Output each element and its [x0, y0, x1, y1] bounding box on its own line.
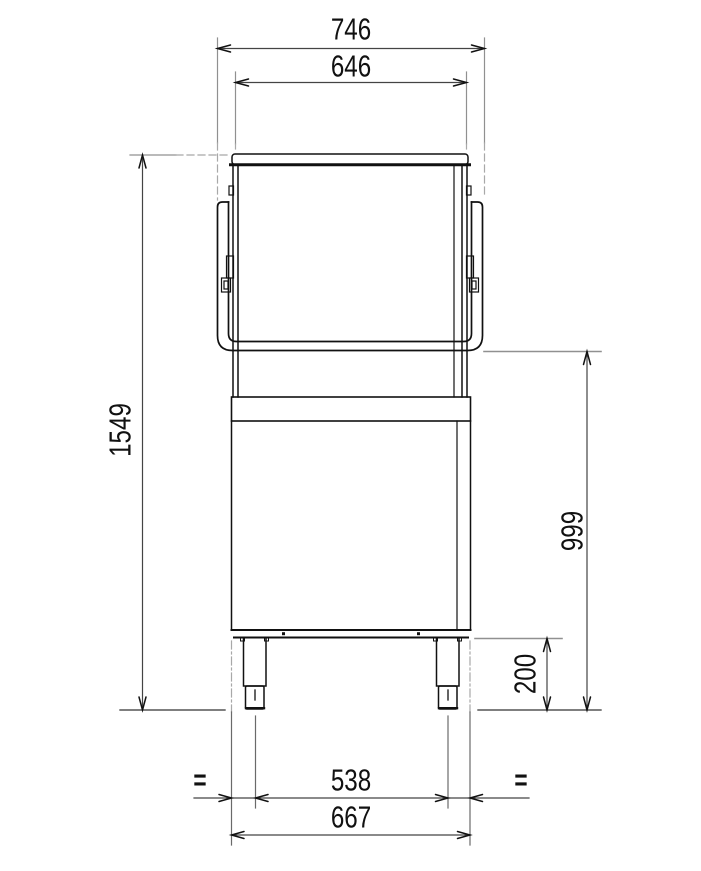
- extension-lines: [120, 38, 601, 845]
- dim-label-top-outer-width: 746: [331, 14, 371, 45]
- handle-latches: [222, 256, 479, 292]
- legs: [241, 638, 462, 710]
- dimension-lines: [143, 49, 588, 836]
- counter-band: [232, 397, 471, 421]
- dimension-drawing-page: 746 646 1549 999 200 = 538 = 667: [0, 0, 701, 871]
- hood-handle: [218, 202, 483, 351]
- hood-top-cap: [231, 154, 470, 165]
- dim-label-base-width: 667: [331, 802, 371, 833]
- dim-label-equal-left: =: [193, 767, 206, 796]
- dim-label-leg-spacing: 538: [331, 765, 371, 796]
- dim-label-equal-right: =: [514, 767, 527, 796]
- dishwasher-outline: [218, 154, 483, 709]
- base-strip: [234, 632, 468, 637]
- dim-label-top-inner-width: 646: [331, 51, 371, 82]
- lower-cabinet: [232, 421, 471, 630]
- dim-label-overall-height: 1549: [105, 403, 136, 457]
- dim-label-leg-height: 200: [510, 654, 541, 694]
- dim-label-working-height: 999: [557, 511, 588, 551]
- hood-body: [229, 166, 471, 397]
